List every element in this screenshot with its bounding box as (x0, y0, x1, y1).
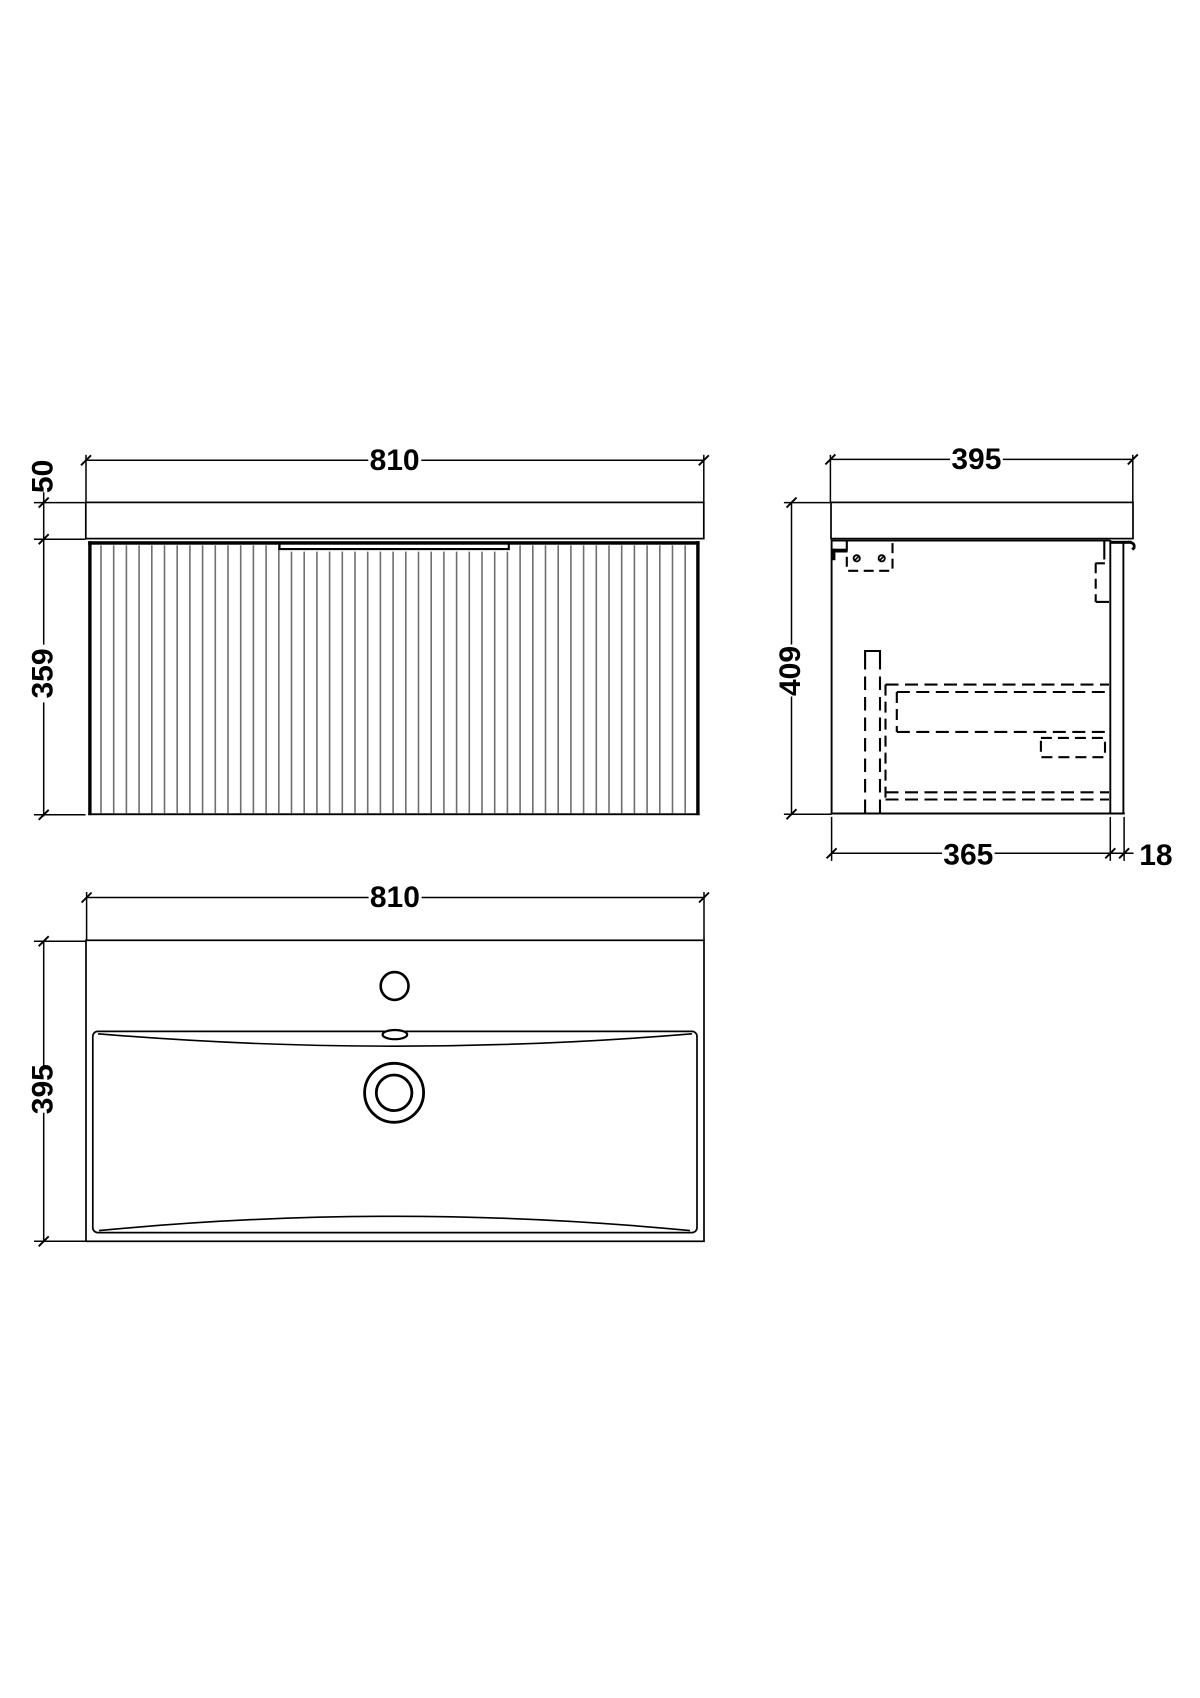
svg-text:18: 18 (1139, 839, 1172, 872)
svg-text:395: 395 (27, 1064, 60, 1114)
svg-text:359: 359 (27, 648, 60, 698)
svg-text:50: 50 (27, 460, 60, 493)
svg-text:810: 810 (370, 444, 420, 477)
svg-text:365: 365 (943, 839, 993, 872)
svg-text:395: 395 (951, 443, 1001, 476)
svg-text:409: 409 (774, 646, 807, 696)
svg-text:810: 810 (370, 881, 420, 914)
